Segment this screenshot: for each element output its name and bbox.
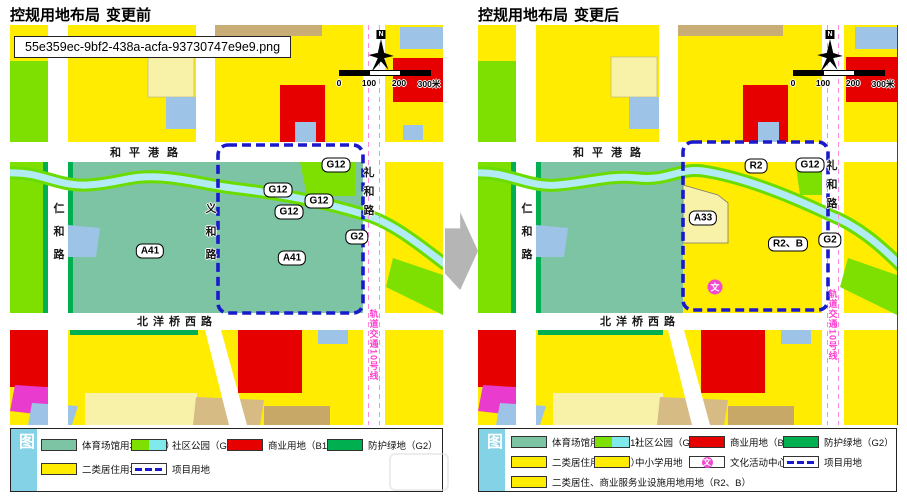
swatch-r2 <box>511 456 547 468</box>
swatch-a33 <box>594 456 630 468</box>
swatch-g12 <box>131 439 167 451</box>
title-after: 控规用地布局变更后 <box>478 4 619 25</box>
legend-item-culture: 文 文化活动中心 <box>689 455 787 469</box>
north-n-label: N <box>825 30 834 39</box>
road-label-hepinggang: 和平港路 <box>573 144 649 160</box>
planning-map-comparison: 控规用地布局变更前 控规用地布局变更后 55e359ec-9bf2-438a-a… <box>0 0 907 496</box>
legend-item-g2: 防护绿地（G2） <box>783 435 894 449</box>
swatch-g2 <box>327 439 363 451</box>
legend-item-site: 项目用地 <box>783 455 862 469</box>
north-n-label: N <box>376 30 385 39</box>
swatch-r2 <box>41 463 77 475</box>
title-before: 控规用地布局变更前 <box>10 4 151 25</box>
zone-label-g2: G2 <box>818 233 841 248</box>
metro-line-label: 轨道交通10号线 <box>368 309 381 381</box>
road-label-renhe: 仁和路 <box>50 203 66 272</box>
title-after-prefix: 控规用地布局 <box>478 7 568 24</box>
swatch-g12 <box>594 436 630 448</box>
swatch-a41 <box>41 439 77 451</box>
scale-bar <box>793 70 885 76</box>
zone-label-a33: A33 <box>689 211 717 226</box>
legend-label: 防护绿地（G2） <box>824 435 894 449</box>
zone-label-g12-block: G12 <box>322 158 351 173</box>
north-arrow-icon <box>817 39 843 73</box>
legend-title: 图例 <box>11 429 37 491</box>
road-label-hepinggang: 和平港路 <box>110 144 186 160</box>
road-label-beiyangqiaoxi: 北洋桥西路 <box>137 313 217 329</box>
scale-tick-100: 100 <box>362 78 376 88</box>
map-after: 和平港路 北洋桥西路 仁和路 礼和路 轨道交通10号线 R2 G12 A33 R… <box>478 25 898 425</box>
road-label-lihe: 礼和路 <box>823 160 839 217</box>
road-label-yihe: 义和路 <box>202 203 218 272</box>
zone-label-g12-river-b: G12 <box>305 194 334 209</box>
legend-label: 二类居住、商业服务业设施用地用地（R2、B） <box>552 475 751 489</box>
legend-label: 项目用地 <box>824 455 862 469</box>
swatch-r2b <box>511 476 547 488</box>
legend-label: 项目用地 <box>172 462 210 476</box>
legend-item-site: 项目用地 <box>131 462 210 476</box>
culture-char: 文 <box>702 457 713 468</box>
metro-line-label: 轨道交通10号线 <box>827 289 840 361</box>
road-label-beiyangqiaoxi: 北洋桥西路 <box>600 313 680 329</box>
change-arrow-icon <box>445 212 478 290</box>
swatch-g2 <box>783 436 819 448</box>
swatch-a41 <box>511 436 547 448</box>
scale-tick-0: 0 <box>337 78 342 88</box>
watermark <box>389 453 449 491</box>
culture-center-icon: 文 <box>708 280 723 295</box>
zone-label-a41-site: A41 <box>278 251 306 266</box>
swatch-b1 <box>689 436 725 448</box>
scale-bar <box>339 70 431 76</box>
legend-label: 文化活动中心 <box>730 455 787 469</box>
zone-label-a41-west: A41 <box>136 244 164 259</box>
swatch-project-site <box>783 456 819 468</box>
map-after-canvas <box>478 25 897 425</box>
legend-item-g2: 防护绿地（G2） <box>327 438 438 452</box>
north-arrow-icon <box>368 39 394 73</box>
filename-tooltip: 55e359ec-9bf2-438a-acfa-93730747e9e9.png <box>14 36 291 58</box>
title-before-suffix: 变更前 <box>106 7 151 24</box>
scale-tick-200: 200 <box>846 78 860 88</box>
scale-tick-100: 100 <box>816 78 830 88</box>
legend-item-r2b: 二类居住、商业服务业设施用地用地（R2、B） <box>511 475 751 489</box>
legend-before: 图例 体育场馆用地（A41） 社区公园（G12） 商业用地（B1） 防护绿地（G… <box>10 428 443 492</box>
zone-label-g12-river-c: G12 <box>275 205 304 220</box>
swatch-project-site <box>131 463 167 475</box>
road-label-lihe: 礼和路 <box>360 167 376 224</box>
legend-after: 图例 体育场馆用地（A41） 社区公园（G12） 商业用地（B1） 防护绿地（G… <box>478 428 897 492</box>
title-after-suffix: 变更后 <box>574 7 619 24</box>
scale-tick-0: 0 <box>791 78 796 88</box>
zone-label-g12-block: G12 <box>796 158 825 173</box>
legend-title: 图例 <box>479 429 505 491</box>
zone-label-r2b: R2、B <box>768 237 808 252</box>
road-label-renhe: 仁和路 <box>518 203 534 272</box>
zone-label-g2: G2 <box>345 230 368 245</box>
zone-label-r2: R2 <box>745 159 768 174</box>
zone-label-g12-river-a: G12 <box>264 183 293 198</box>
culture-center-legend-icon: 文 <box>689 456 725 468</box>
legend-item-b1: 商业用地（B1） <box>227 438 337 452</box>
scale-tick-200: 200 <box>392 78 406 88</box>
legend-label: 防护绿地（G2） <box>368 438 438 452</box>
title-before-prefix: 控规用地布局 <box>10 7 100 24</box>
swatch-b1 <box>227 439 263 451</box>
scale-tick-300: 300米 <box>418 78 441 90</box>
scale-tick-300: 300米 <box>872 78 895 90</box>
map-before: 和平港路 北洋桥西路 仁和路 义和路 礼和路 轨道交通10号线 A41 A41 … <box>10 25 443 425</box>
